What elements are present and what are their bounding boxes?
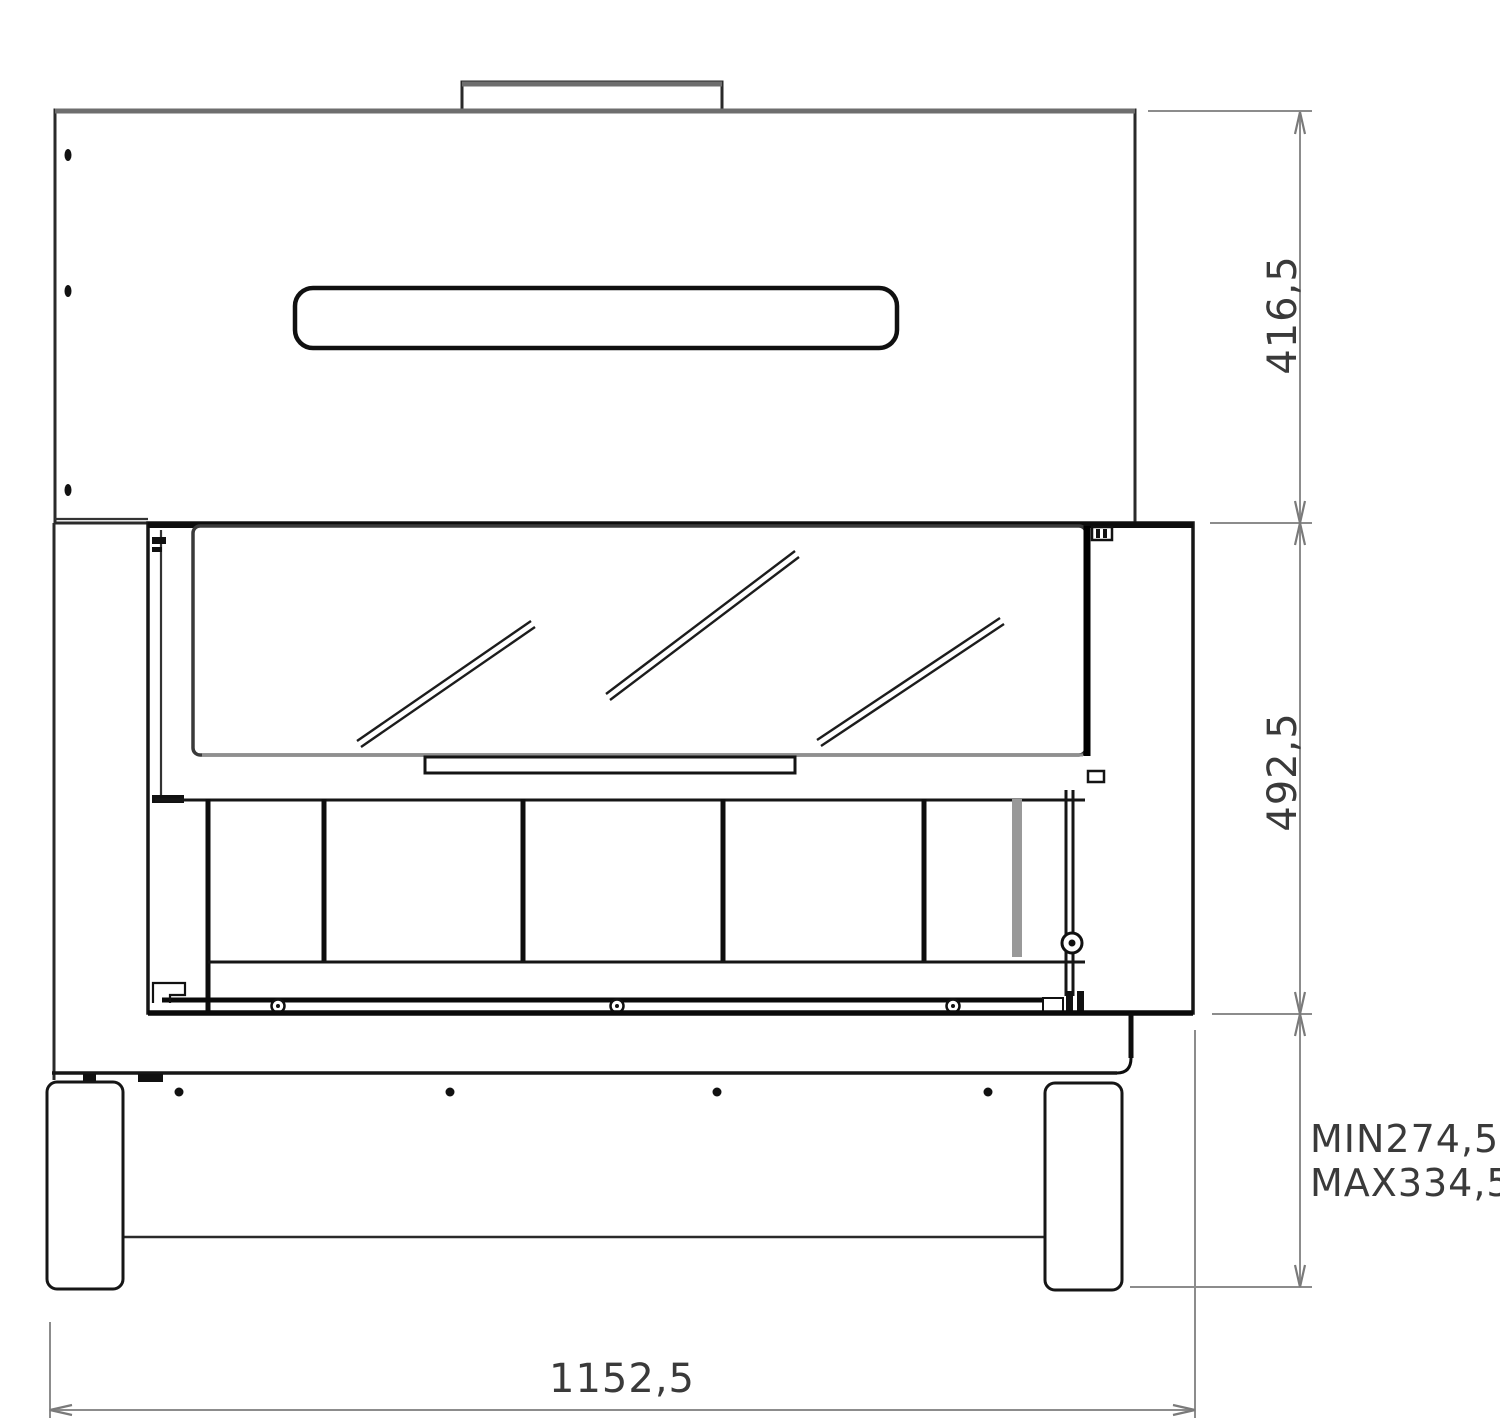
leveler-tab-2: [138, 1074, 163, 1082]
left-foot: [47, 1082, 123, 1289]
door-handle: [425, 757, 795, 773]
dim-label-hood-height: 416,5: [1260, 255, 1306, 375]
latch-tab-top-mark-1: [1096, 529, 1100, 538]
hinge-block-2: [1077, 991, 1084, 1013]
dim-label-base-min: MIN274,5: [1310, 1117, 1499, 1161]
glass-door: [193, 526, 1086, 755]
left-hinge-mark-1: [152, 537, 166, 544]
hinge-block-1: [1066, 991, 1073, 1013]
vent-slot: [295, 288, 897, 348]
lock-knob-center: [1069, 940, 1076, 947]
latch-tab-top-mark-2: [1103, 529, 1107, 538]
dim-label-firebox-height: 492,5: [1260, 712, 1306, 832]
fireplace-elevation-svg: 416,5 492,5 MIN274,5 MAX334,5 1152,5: [0, 0, 1500, 1427]
firebox-section: [148, 523, 1193, 1013]
left-hinge-mark-2: [152, 547, 162, 552]
hood-section: [55, 82, 1135, 523]
technical-drawing-canvas: 416,5 492,5 MIN274,5 MAX334,5 1152,5: [0, 0, 1500, 1427]
dim-label-overall-width: 1152,5: [549, 1356, 695, 1402]
hood-screw-3: [65, 484, 72, 496]
hood-screw-2: [65, 285, 72, 297]
latch-tab-top: [1092, 527, 1112, 540]
dim-label-base-max: MAX334,5: [1310, 1161, 1500, 1205]
latch-tab-lower: [1088, 771, 1104, 782]
inner-wall-shade: [1012, 799, 1022, 957]
panel-screw-dots: [175, 1088, 993, 1097]
base-section: [47, 1013, 1131, 1290]
base-right-corner: [1117, 1058, 1131, 1073]
right-foot: [1045, 1083, 1122, 1290]
hood-screw-1: [65, 149, 72, 161]
right-step: [1043, 998, 1063, 1012]
